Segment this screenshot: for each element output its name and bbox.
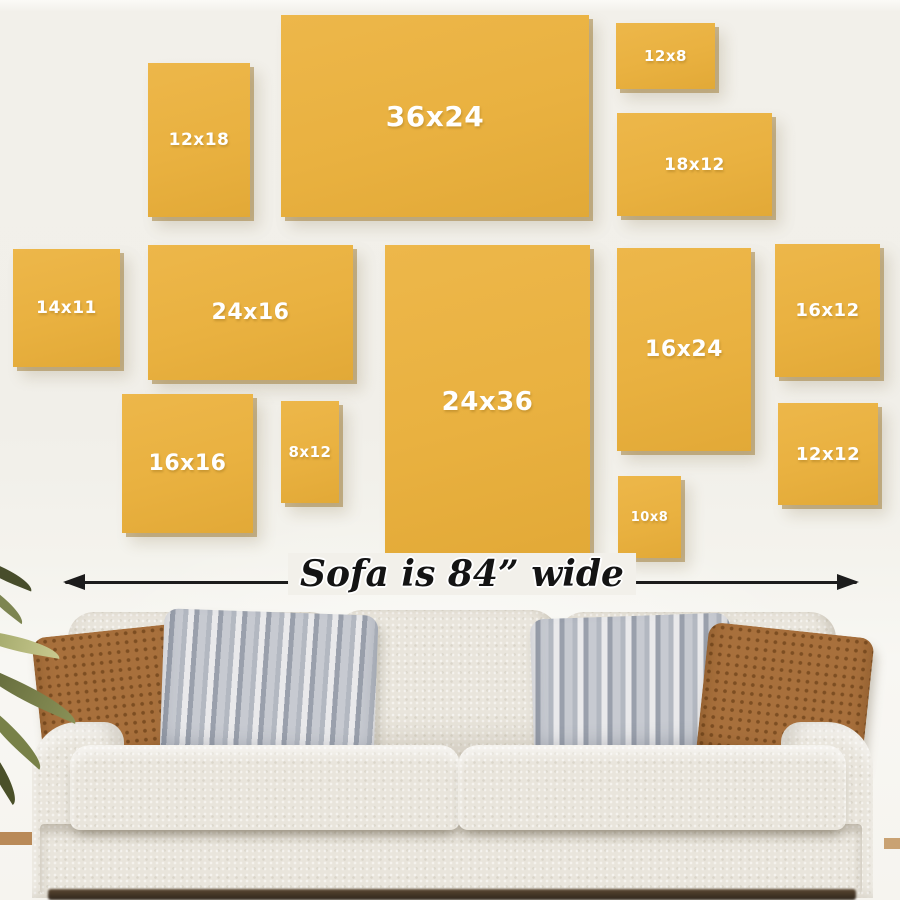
sofa-seat-cushion-right — [458, 745, 846, 830]
floor-strip-left — [0, 832, 34, 845]
frame-size-label: 36x24 — [386, 100, 485, 133]
frame-14x11: 14x11 — [13, 249, 120, 367]
frame-12x12: 12x12 — [778, 403, 878, 505]
frame-size-label: 24x16 — [212, 300, 290, 325]
frame-12x8: 12x8 — [616, 23, 715, 89]
frame-size-label: 12x18 — [169, 130, 230, 150]
frame-16x16: 16x16 — [122, 394, 253, 533]
sofa-seat-cushion-left — [70, 745, 460, 830]
frame-24x36: 24x36 — [385, 245, 590, 558]
frame-size-label: 18x12 — [664, 155, 725, 175]
frame-8x12: 8x12 — [281, 401, 339, 503]
frame-size-label: 14x11 — [36, 298, 97, 318]
pillow-striped-left — [159, 608, 378, 763]
arrow-left-icon — [63, 574, 85, 590]
floor-strip-right — [884, 838, 900, 849]
plant-leaf — [0, 583, 28, 624]
frame-36x24: 36x24 — [281, 15, 589, 217]
size-guide-scene: 12x1836x2412x818x1214x1124x1624x3616x241… — [0, 0, 900, 900]
frame-16x12: 16x12 — [775, 244, 880, 377]
sofa-base — [40, 824, 862, 894]
frame-size-label: 16x16 — [149, 451, 227, 476]
sofa-width-label: Sofa is 84” wide — [288, 553, 636, 595]
frame-size-label: 8x12 — [289, 443, 332, 461]
frame-24x16: 24x16 — [148, 245, 353, 380]
frame-size-label: 12x12 — [796, 444, 860, 465]
plant-leaf — [0, 556, 36, 591]
frame-10x8: 10x8 — [618, 476, 681, 558]
sofa-floor-shadow — [48, 889, 856, 900]
frame-size-label: 16x12 — [795, 300, 859, 321]
frame-size-label: 24x36 — [442, 387, 534, 417]
arrow-right-icon — [837, 574, 859, 590]
frame-12x18: 12x18 — [148, 63, 250, 217]
frame-size-label: 10x8 — [631, 510, 669, 525]
frame-size-label: 16x24 — [645, 337, 723, 362]
frame-18x12: 18x12 — [617, 113, 772, 216]
plant-leaf — [0, 748, 23, 805]
frame-size-label: 12x8 — [644, 47, 687, 65]
frame-16x24: 16x24 — [617, 248, 751, 451]
